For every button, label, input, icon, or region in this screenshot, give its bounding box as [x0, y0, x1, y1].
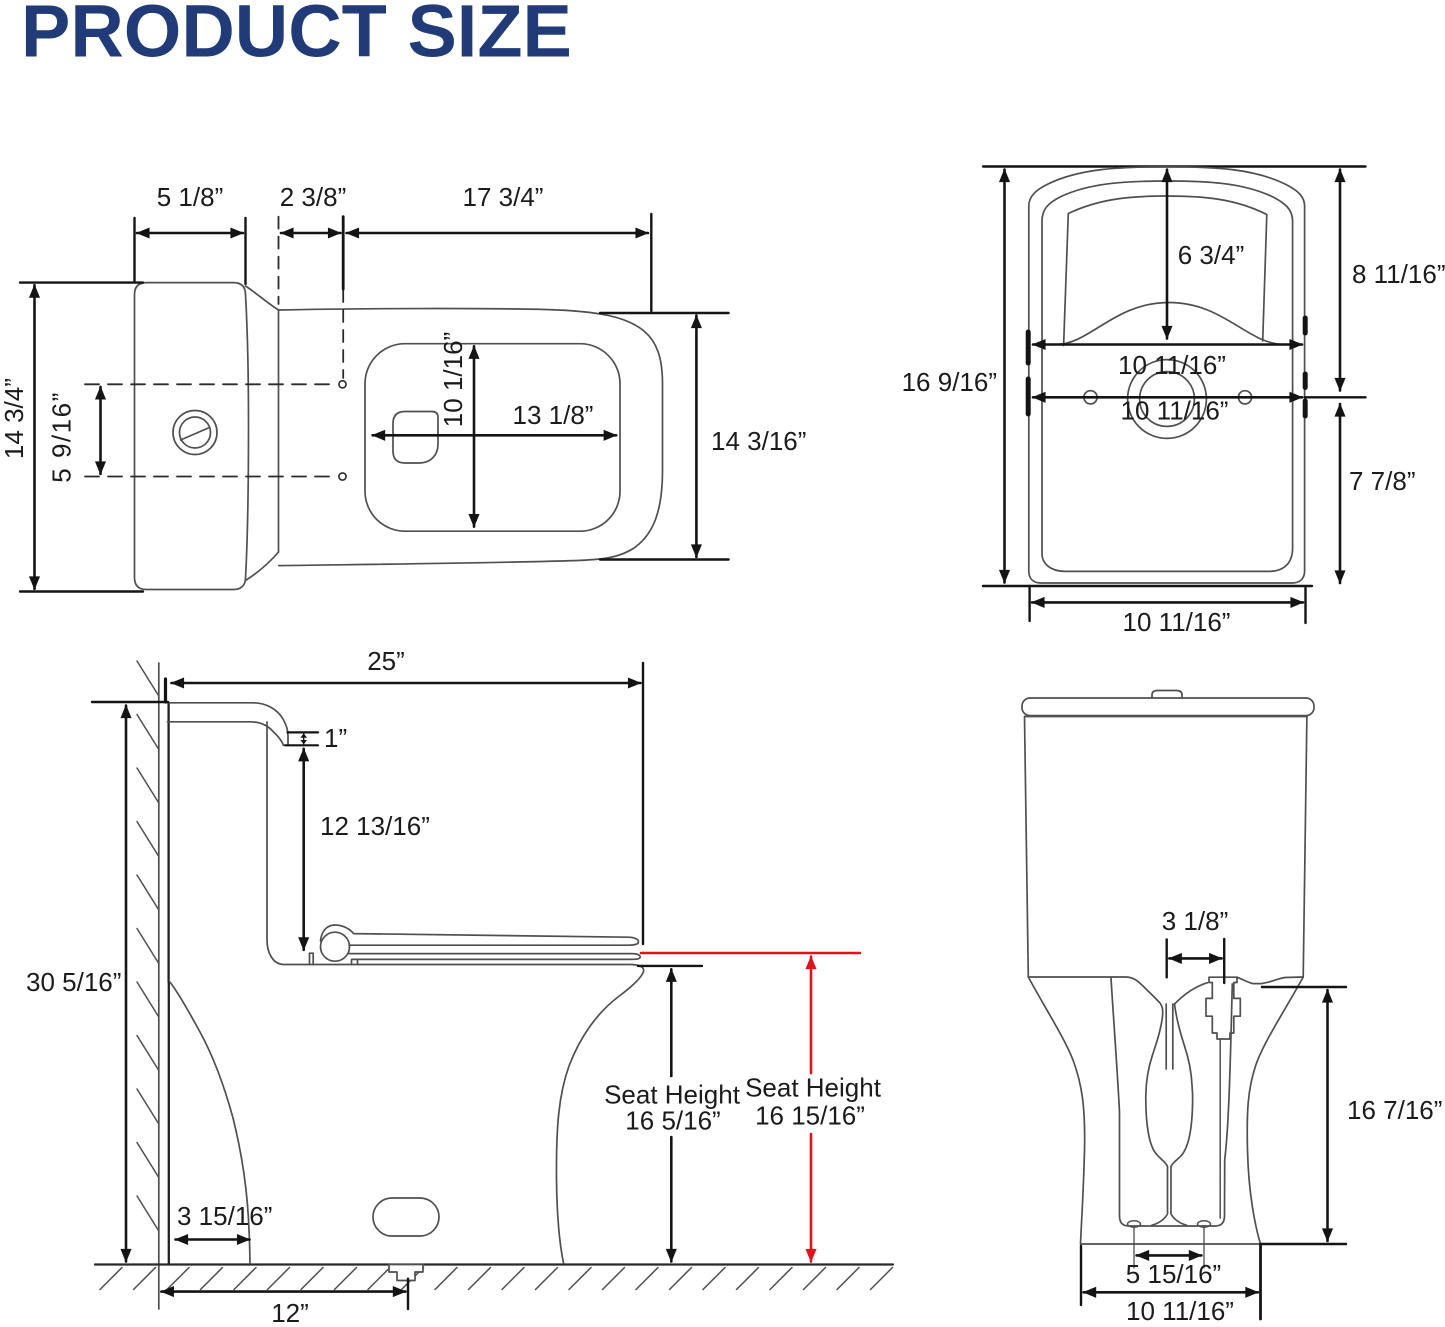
svg-text:10 11/16”: 10 11/16”	[1126, 1296, 1234, 1326]
svg-text:3 15/16”: 3 15/16”	[177, 1201, 272, 1231]
svg-text:16 9/16”: 16 9/16”	[902, 367, 997, 397]
svg-text:16 7/16”: 16 7/16”	[1347, 1095, 1442, 1125]
svg-text:10 11/16”: 10 11/16”	[1123, 607, 1231, 637]
svg-text:30 5/16”: 30 5/16”	[26, 967, 121, 997]
svg-text:10 11/16”: 10 11/16”	[1121, 396, 1229, 426]
svg-text:6 3/4”: 6 3/4”	[1178, 240, 1245, 270]
svg-text:1”: 1”	[324, 723, 347, 753]
svg-text:17 3/4”: 17 3/4”	[463, 182, 544, 212]
svg-text:2 3/8”: 2 3/8”	[280, 182, 347, 212]
svg-text:14 3/16”: 14 3/16”	[711, 426, 806, 456]
svg-text:5 9/16”: 5 9/16”	[47, 391, 77, 482]
svg-text:8 11/16”: 8 11/16”	[1352, 259, 1445, 289]
svg-text:PRODUCT SIZE: PRODUCT SIZE	[21, 0, 572, 73]
svg-text:5 15/16”: 5 15/16”	[1126, 1259, 1221, 1289]
svg-text:10 11/16”: 10 11/16”	[1118, 350, 1226, 380]
svg-text:14 3/4”: 14 3/4”	[0, 378, 29, 459]
svg-text:12 13/16”: 12 13/16”	[320, 811, 430, 841]
svg-text:10 1/16”: 10 1/16”	[438, 332, 468, 427]
svg-text:Seat Height: Seat Height	[745, 1073, 882, 1103]
svg-text:5 1/8”: 5 1/8”	[157, 182, 224, 212]
svg-text:16 15/16”: 16 15/16”	[755, 1101, 865, 1131]
svg-text:13 1/8”: 13 1/8”	[513, 400, 594, 430]
svg-text:25”: 25”	[367, 646, 405, 676]
svg-text:3 1/8”: 3 1/8”	[1162, 906, 1229, 936]
svg-text:16 5/16”: 16 5/16”	[625, 1106, 720, 1136]
svg-text:7 7/8”: 7 7/8”	[1349, 466, 1416, 496]
svg-text:12”: 12”	[271, 1298, 309, 1327]
